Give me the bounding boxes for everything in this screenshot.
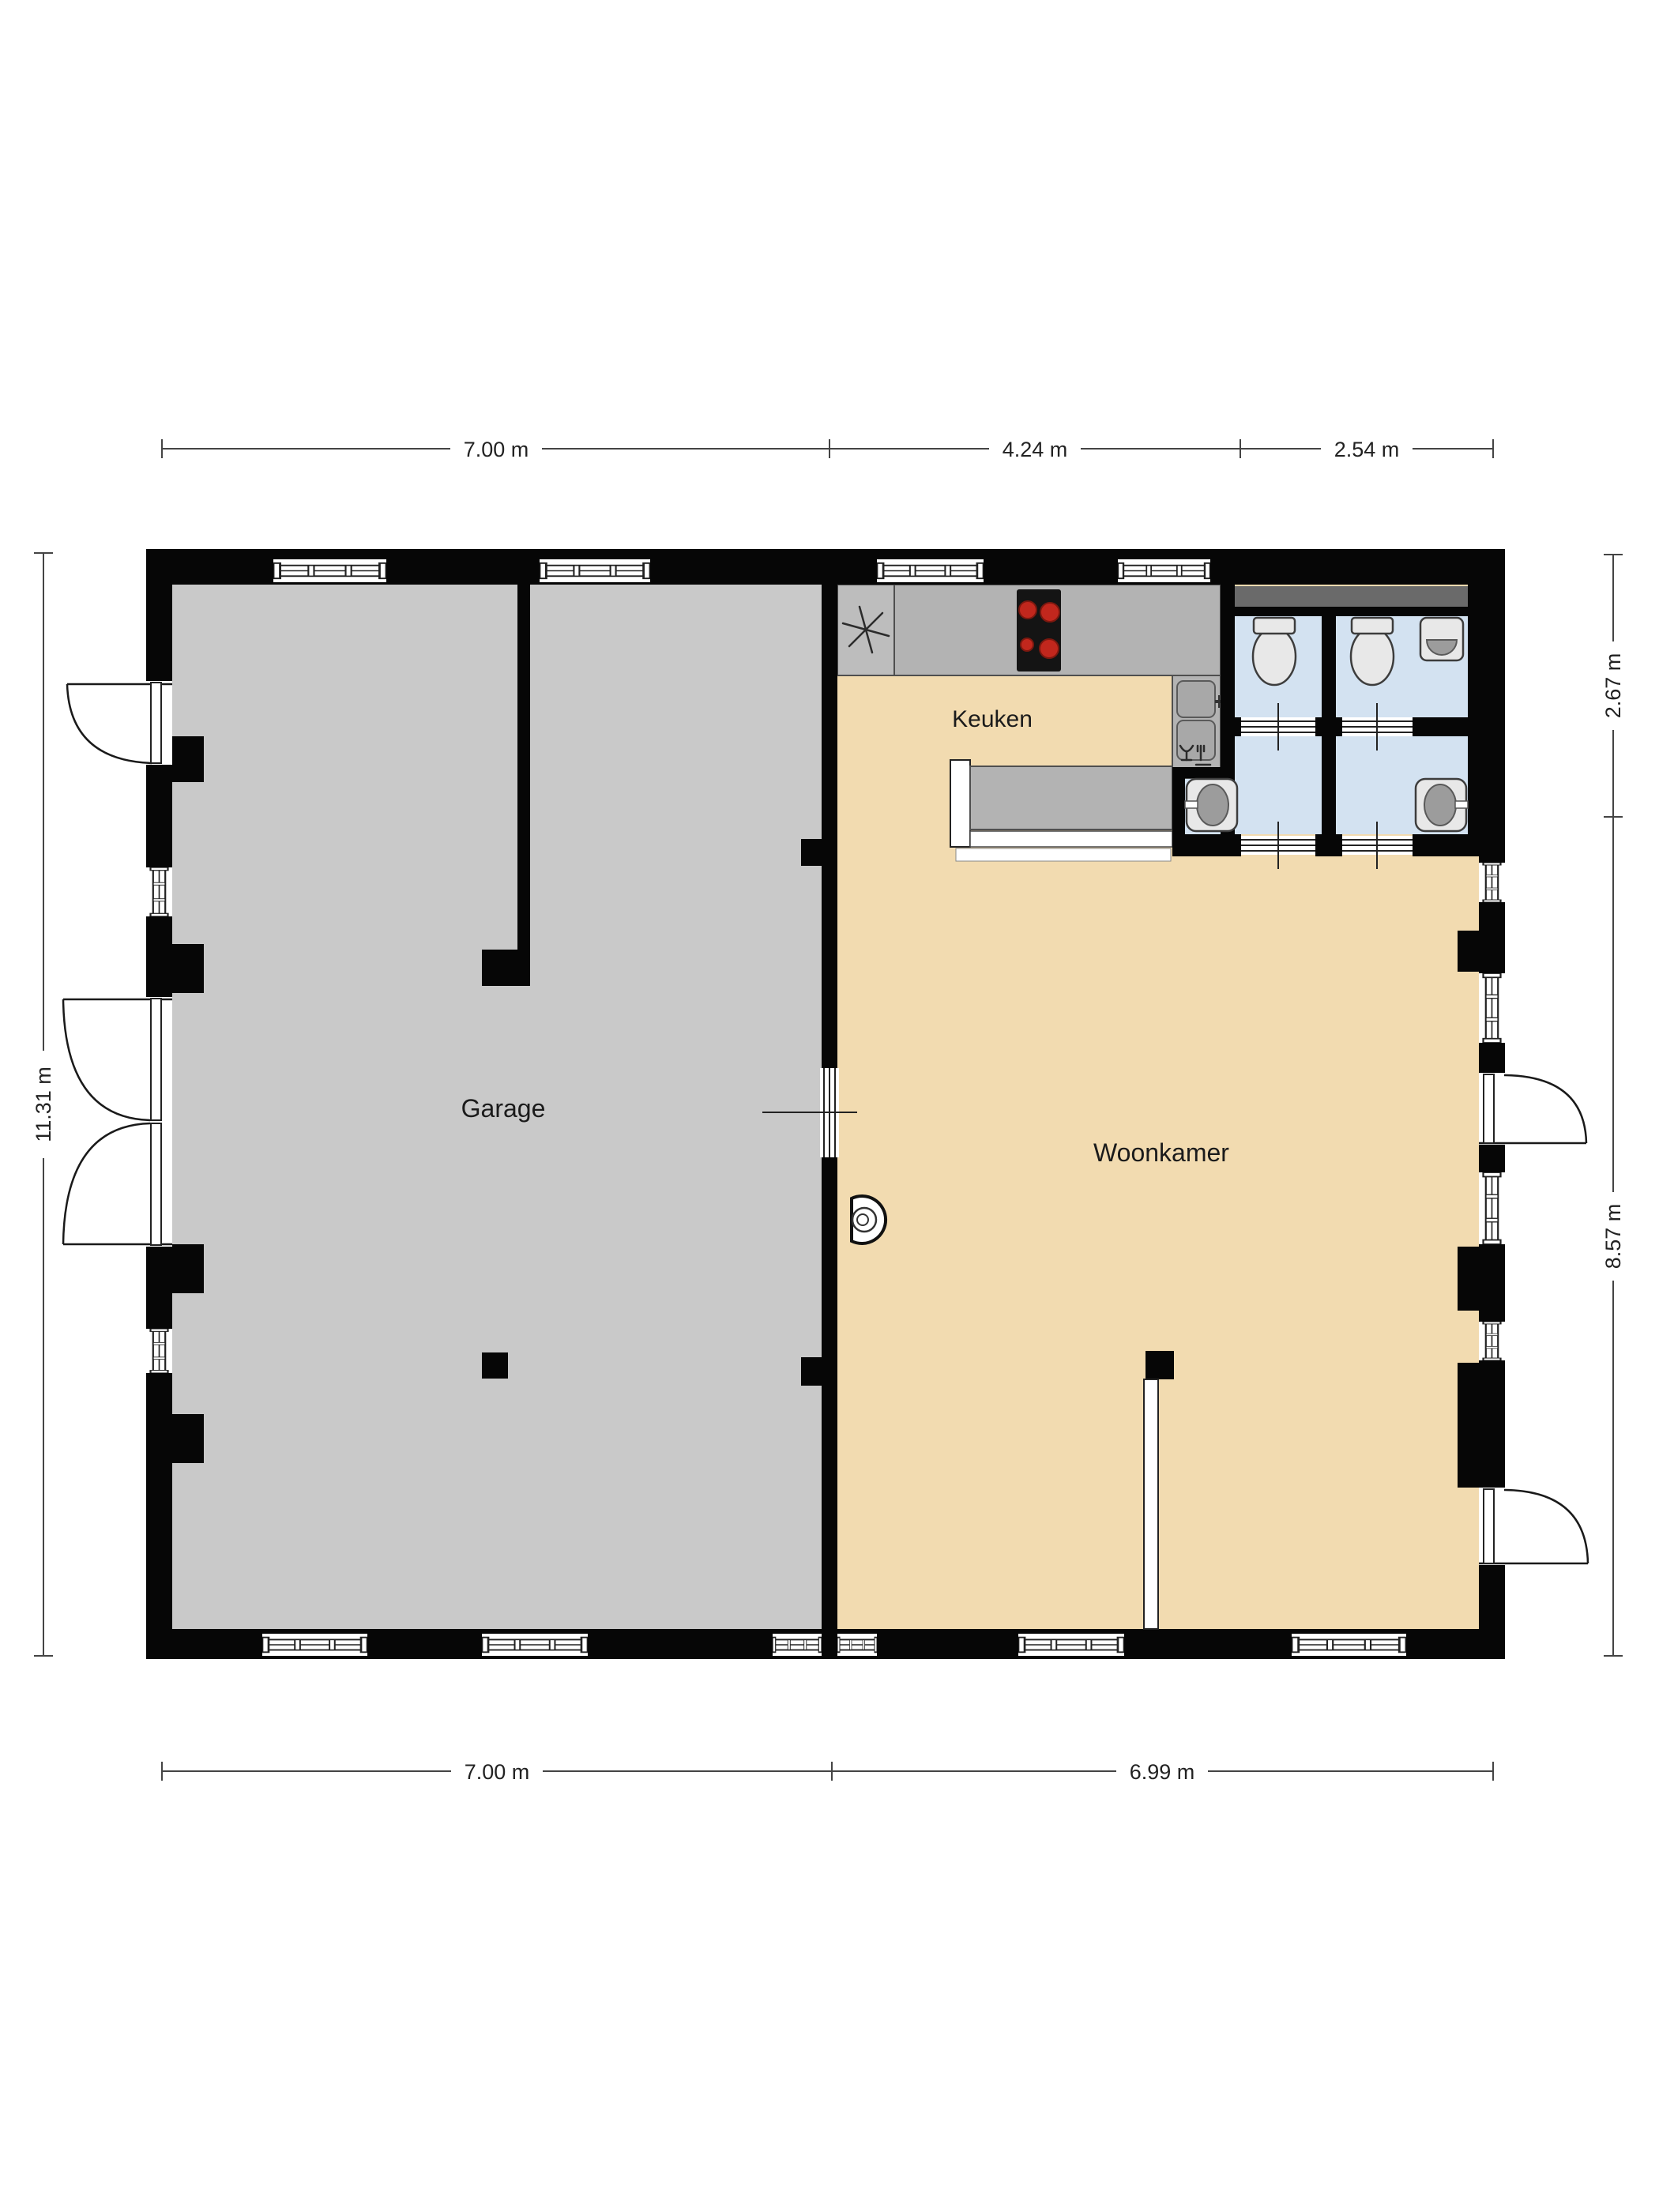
floorplan-drawing: Garage Keuken Woonkamer 7.00 m 4.24 m 2.… — [0, 0, 1659, 2212]
dim-bottom-2: 6.99 m — [1130, 1760, 1195, 1784]
pilaster — [172, 944, 204, 993]
garage-column — [482, 1352, 508, 1379]
peninsula-counter — [970, 766, 1172, 829]
garage-label: Garage — [461, 1094, 546, 1123]
woonkamer-label: Woonkamer — [1093, 1138, 1229, 1167]
living-column — [1145, 1351, 1174, 1379]
dim-right-1: 2.67 m — [1601, 653, 1625, 719]
window-icon — [482, 1634, 588, 1656]
window-icon — [1018, 1634, 1124, 1656]
bathroom-corner-step — [1448, 834, 1505, 856]
toilet-icon — [1351, 618, 1394, 685]
pilaster — [172, 1244, 204, 1293]
peninsula-end-panel — [950, 760, 970, 847]
dim-bottom-1: 7.00 m — [465, 1760, 530, 1784]
window-icon — [540, 559, 650, 582]
door-left-single — [67, 681, 172, 765]
window-icon — [1479, 863, 1505, 902]
window-icon — [262, 1634, 367, 1656]
pilaster — [1458, 931, 1479, 972]
floorplan-page: Garage Keuken Woonkamer 7.00 m 4.24 m 2.… — [0, 0, 1659, 2212]
door-left-double — [63, 997, 172, 1247]
pilaster — [801, 1357, 822, 1386]
window-icon — [1292, 1634, 1406, 1656]
washbasin-icon — [1185, 779, 1237, 831]
kitchen-stub-wall — [1172, 767, 1221, 778]
pilaster — [172, 1414, 204, 1463]
window-icon — [146, 1329, 172, 1373]
pilaster — [801, 839, 822, 866]
pilaster — [172, 736, 204, 782]
dimension-top: 7.00 m 4.24 m 2.54 m — [162, 433, 1493, 465]
bathroom-wall-under-cabinet — [1235, 607, 1468, 616]
dimension-left: 11.31 m — [28, 553, 59, 1656]
dim-top-3: 2.54 m — [1334, 438, 1400, 461]
keuken-label: Keuken — [952, 706, 1033, 732]
window-icon — [1479, 1172, 1505, 1244]
bar-counter — [950, 760, 1172, 861]
pilaster — [1458, 1247, 1479, 1311]
cooktop-icon — [1017, 589, 1061, 671]
wood-stove-icon — [852, 1196, 886, 1243]
dimension-bottom: 7.00 m 6.99 m — [162, 1755, 1493, 1787]
bathroom-wall-mid — [1235, 717, 1241, 736]
kitchen-stub-wall — [1172, 778, 1185, 856]
washbasin-icon — [1416, 779, 1468, 831]
bathroom-wall-bottom — [1185, 834, 1241, 856]
bathroom-wall-bottom — [1413, 834, 1448, 856]
pilaster — [1458, 1363, 1479, 1488]
door-right-lower — [1479, 1488, 1588, 1565]
dim-top-1: 7.00 m — [464, 438, 529, 461]
bathroom-wall-mid — [1413, 717, 1468, 736]
window-icon — [837, 1634, 877, 1656]
dim-right-2: 8.57 m — [1601, 1204, 1625, 1270]
bathroom-wall-right-thick — [1468, 549, 1505, 834]
toilet-icon — [1253, 618, 1296, 685]
dim-left-1: 11.31 m — [32, 1066, 55, 1142]
window-icon — [1479, 1322, 1505, 1360]
window-icon — [1118, 559, 1210, 582]
door-right-upper — [1479, 1073, 1586, 1145]
dimension-right: 2.67 m 8.57 m — [1597, 555, 1629, 1656]
window-icon — [273, 559, 386, 582]
window-icon — [773, 1634, 822, 1656]
garage-partition-foot — [482, 950, 530, 986]
dim-top-2: 4.24 m — [1003, 438, 1068, 461]
living-glass-partition — [1144, 1379, 1158, 1629]
corner-washbasin-icon — [1420, 618, 1463, 660]
window-icon — [146, 867, 172, 916]
bathroom-wall-mid — [1315, 717, 1342, 736]
window-icon — [1479, 973, 1505, 1043]
garage-partition-wall — [517, 585, 530, 950]
bathroom-wall-bottom — [1315, 834, 1342, 856]
bathroom-cabinet-strip — [1235, 586, 1468, 607]
window-icon — [877, 559, 984, 582]
